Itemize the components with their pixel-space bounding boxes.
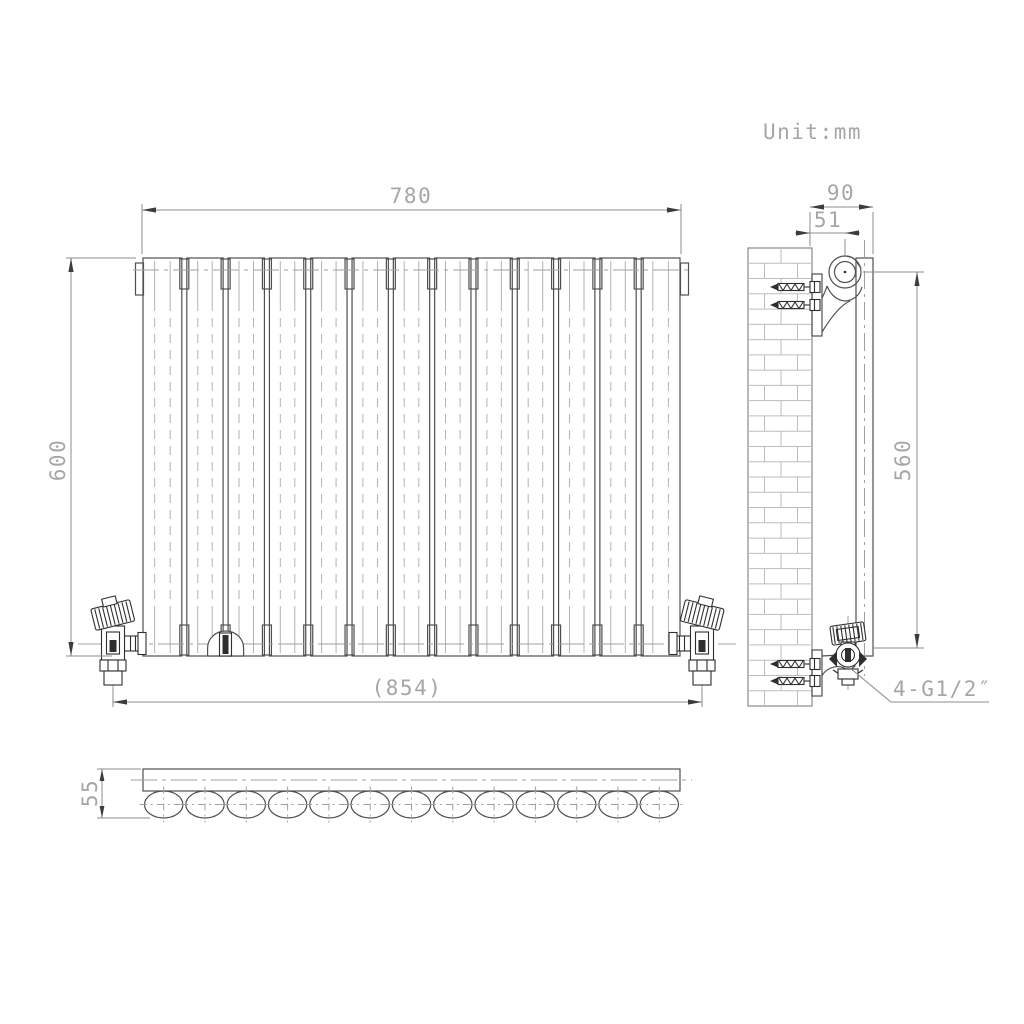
radiator-panel [311, 258, 347, 656]
radiator-panel [641, 258, 680, 656]
dim-valve-span-854: (854) [113, 676, 702, 707]
dim-bracket-span-560: 560 [863, 272, 924, 648]
connection-leader: 4-G1/2″ [850, 668, 992, 702]
wall-anchor-screw [770, 659, 820, 670]
dim-text-780: 780 [390, 184, 432, 208]
radiator-panel [269, 258, 305, 656]
radiator-panel [352, 258, 388, 656]
radiator-panel [187, 258, 223, 656]
radiator-panel [393, 258, 429, 656]
dim-text-560: 560 [891, 439, 915, 481]
radiator-panel [228, 258, 264, 656]
dim-text-55: 55 [78, 779, 102, 807]
wall-anchor-screw [770, 300, 820, 311]
top-bracket [812, 256, 862, 336]
dim-depth-55: 55 [78, 769, 150, 818]
dim-text-854: (854) [372, 676, 443, 700]
dim-text-90: 90 [827, 181, 855, 205]
drawing-canvas: 780 600 (854) 90 51 560 [0, 0, 1024, 1024]
right-valve [669, 593, 726, 700]
side-valve [829, 616, 867, 696]
side-view [748, 240, 873, 706]
right-end-cap [681, 263, 689, 295]
dim-width-780: 780 [142, 184, 681, 254]
dim-text-600: 600 [46, 439, 70, 481]
radiator-panel [600, 258, 636, 656]
left-end-cap [136, 263, 144, 295]
connection-label: 4-G1/2″ [893, 677, 992, 701]
bottom-view [131, 769, 692, 823]
left-valve [89, 593, 146, 700]
dim-height-600: 600 [46, 258, 136, 656]
radiator-panel [435, 258, 471, 656]
radiator-panel [143, 258, 182, 656]
wall-anchor-screw [770, 282, 820, 293]
dim-text-51: 51 [814, 208, 842, 232]
wall-anchor-screw [770, 676, 820, 687]
blanking-plug [208, 631, 244, 656]
unit-label: Unit:mm [763, 120, 862, 144]
front-view [78, 258, 736, 700]
radiator-panel [517, 258, 553, 656]
radiator-panel [559, 258, 595, 656]
radiator-panel [476, 258, 512, 656]
radiator-technical-drawing: 780 600 (854) 90 51 560 [0, 0, 1024, 1024]
